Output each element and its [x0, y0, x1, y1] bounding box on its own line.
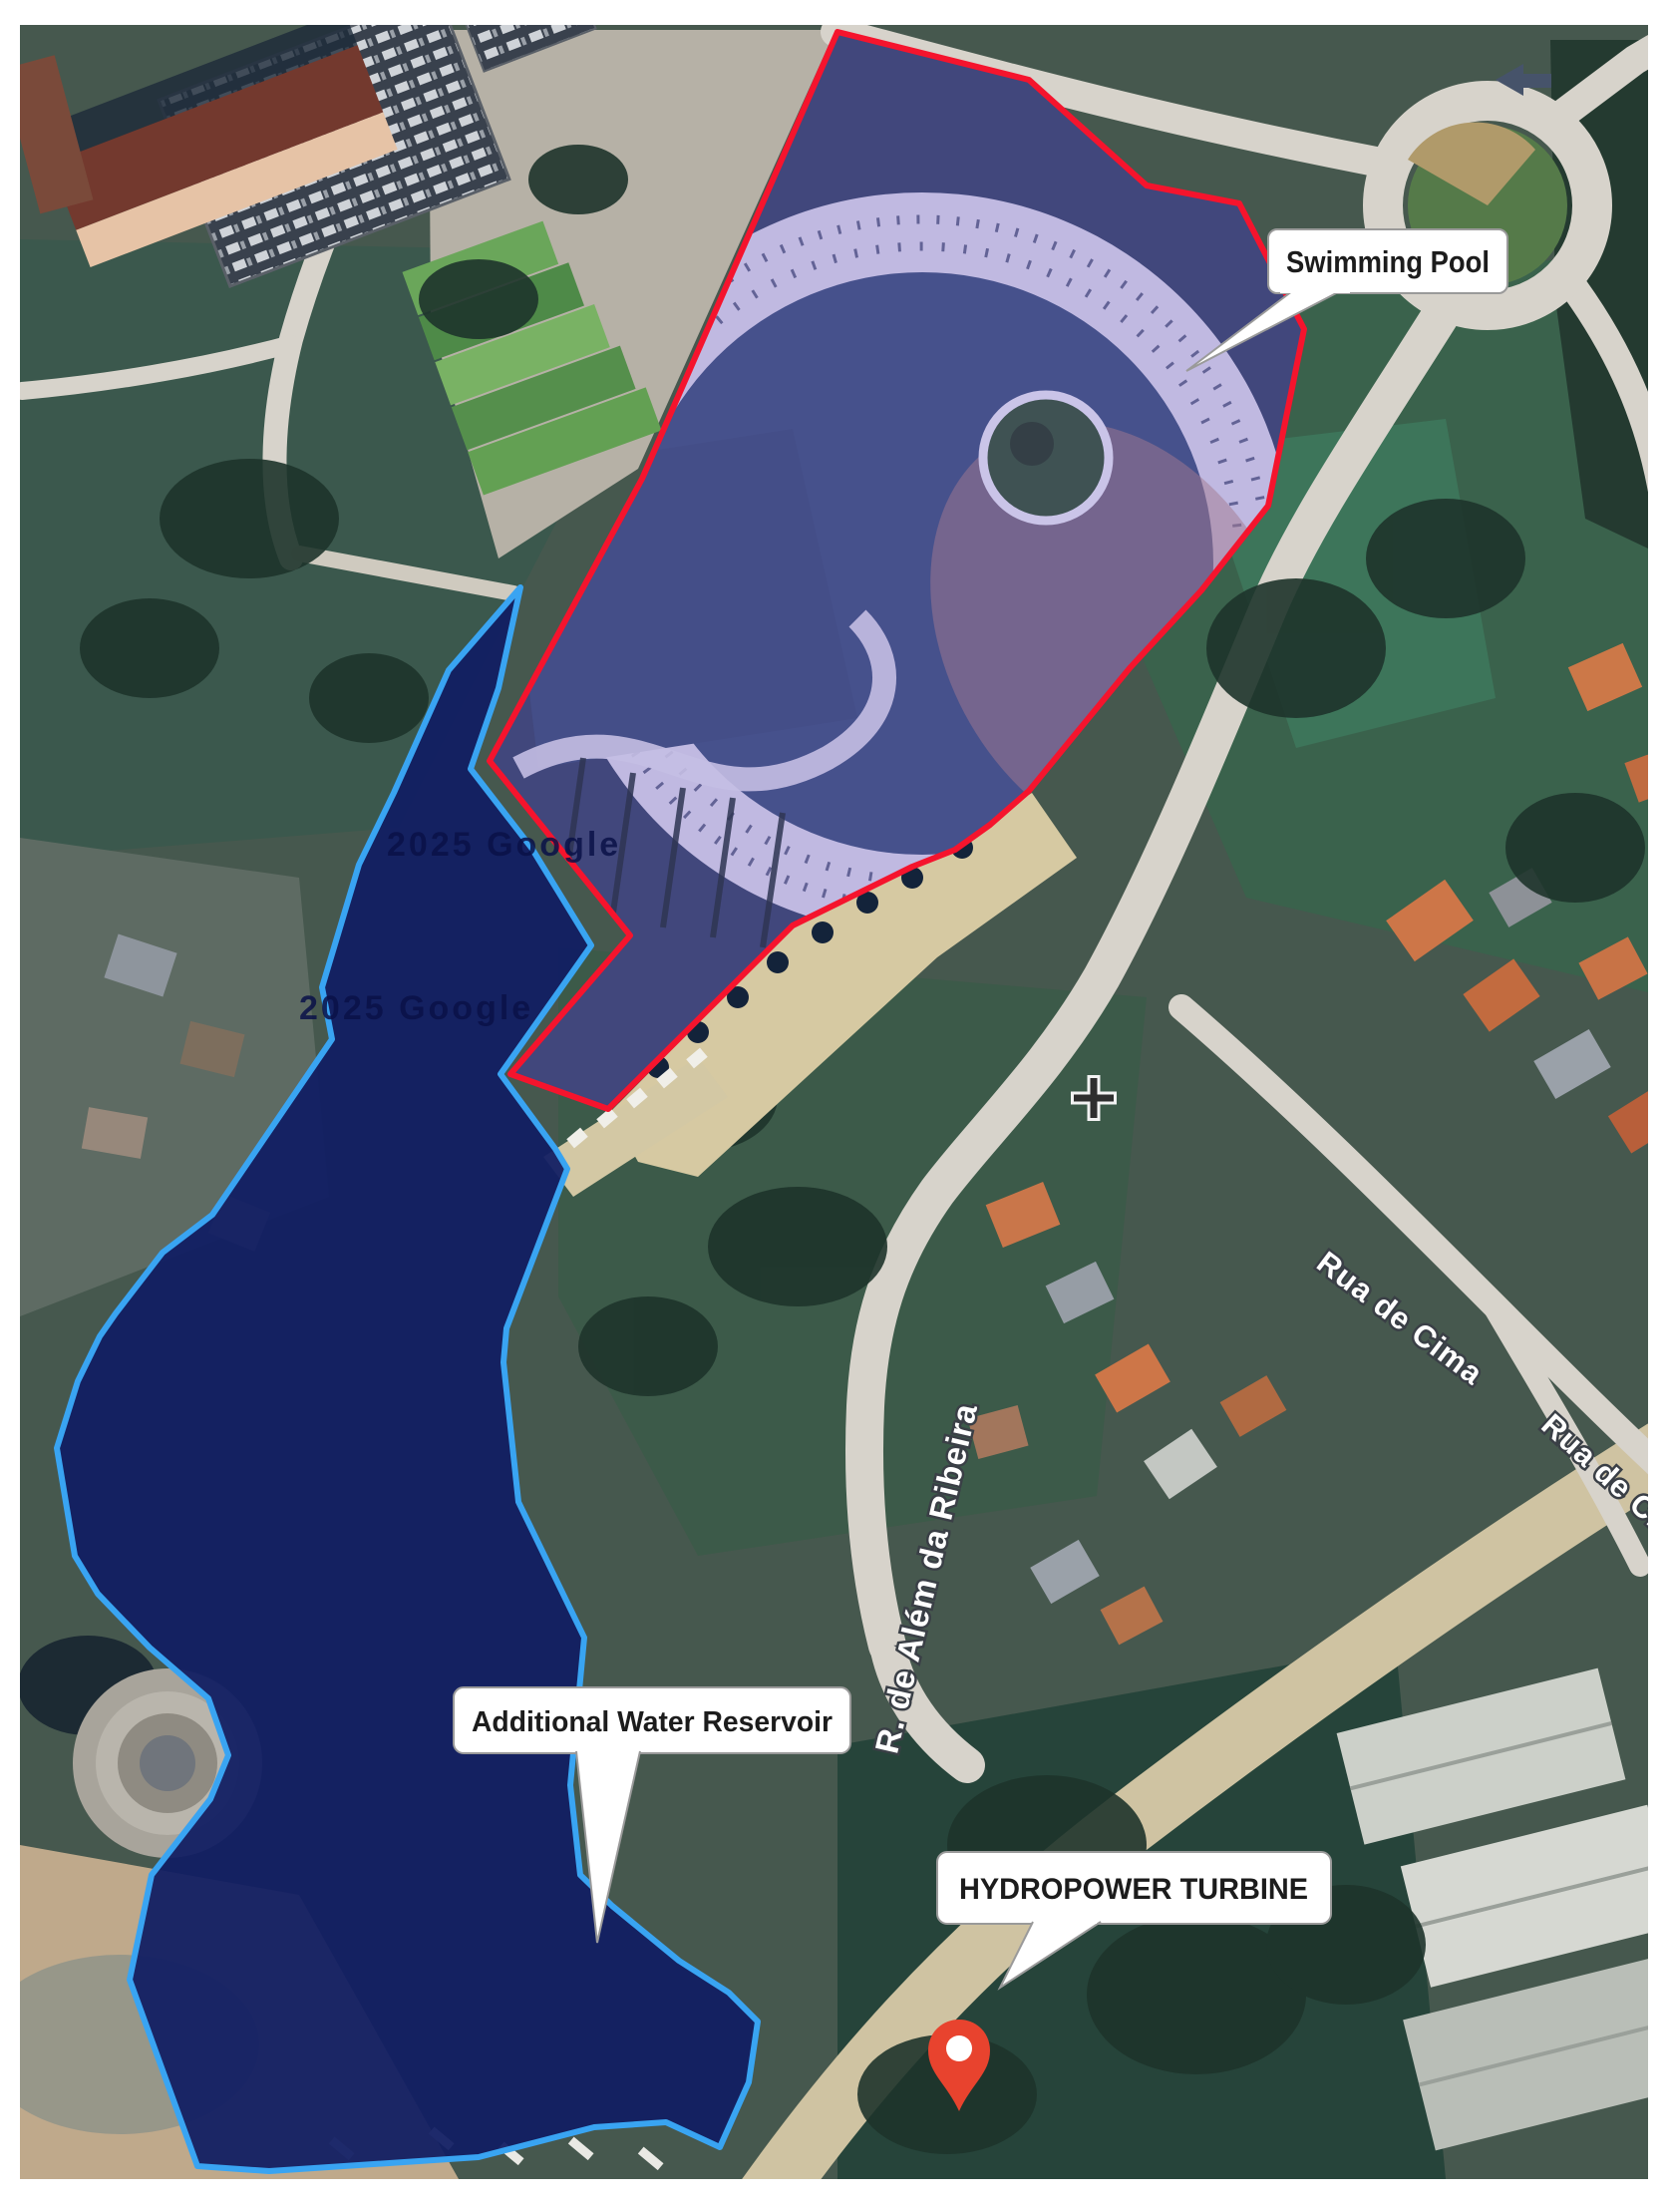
google-watermark: 2025 Google [299, 989, 533, 1027]
callout-text: HYDROPOWER TURBINE [959, 1873, 1308, 1906]
pin-center-dot [946, 2035, 972, 2061]
satellite-map[interactable]: 2025 Google 2025 Google Rua de Cima Rua … [0, 0, 1669, 2212]
google-watermark: 2025 Google [387, 826, 621, 864]
callout-text: Additional Water Reservoir [472, 1706, 833, 1738]
callout-text: Swimming Pool [1286, 244, 1490, 279]
screenshot-page: 2025 Google 2025 Google Rua de Cima Rua … [0, 0, 1669, 2212]
